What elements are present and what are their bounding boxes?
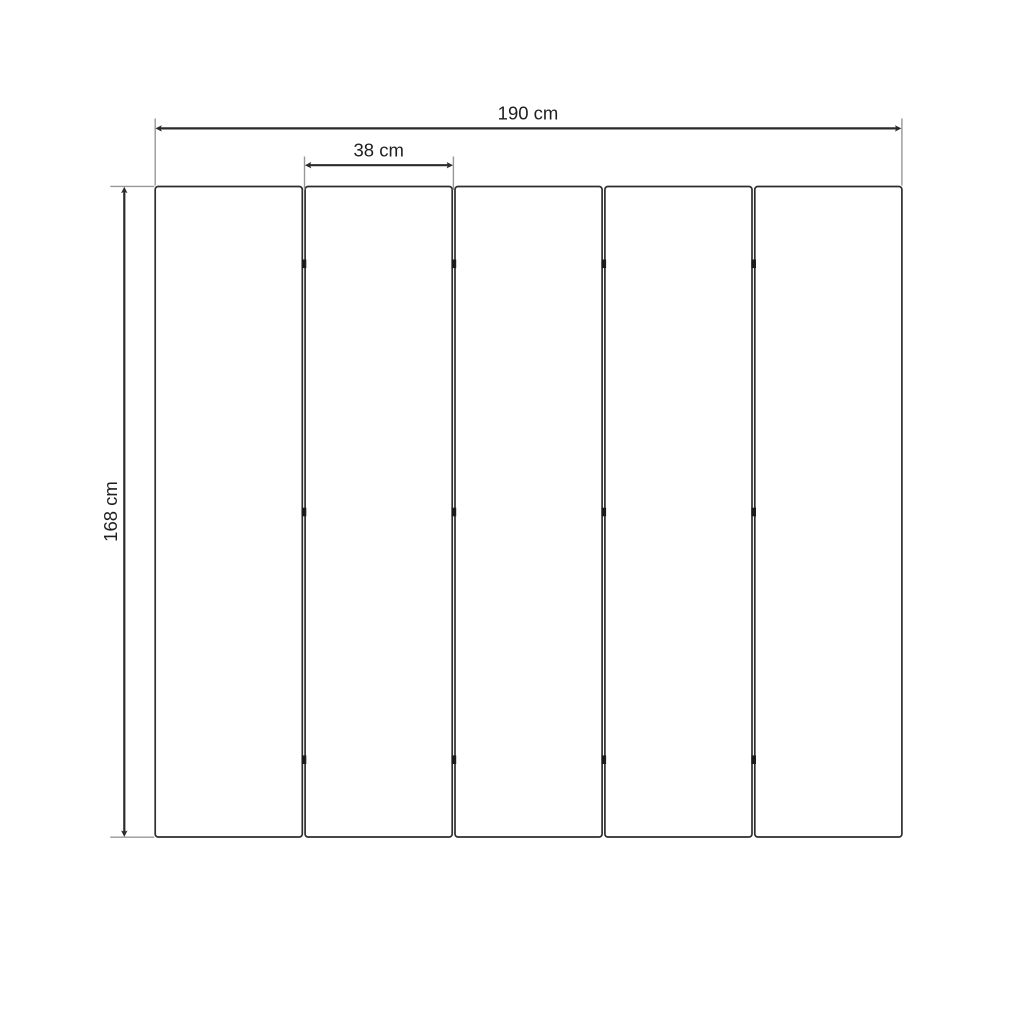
svg-text:38 cm: 38 cm bbox=[354, 139, 404, 160]
svg-text:190 cm: 190 cm bbox=[498, 103, 559, 124]
svg-text:168 cm: 168 cm bbox=[100, 481, 121, 542]
